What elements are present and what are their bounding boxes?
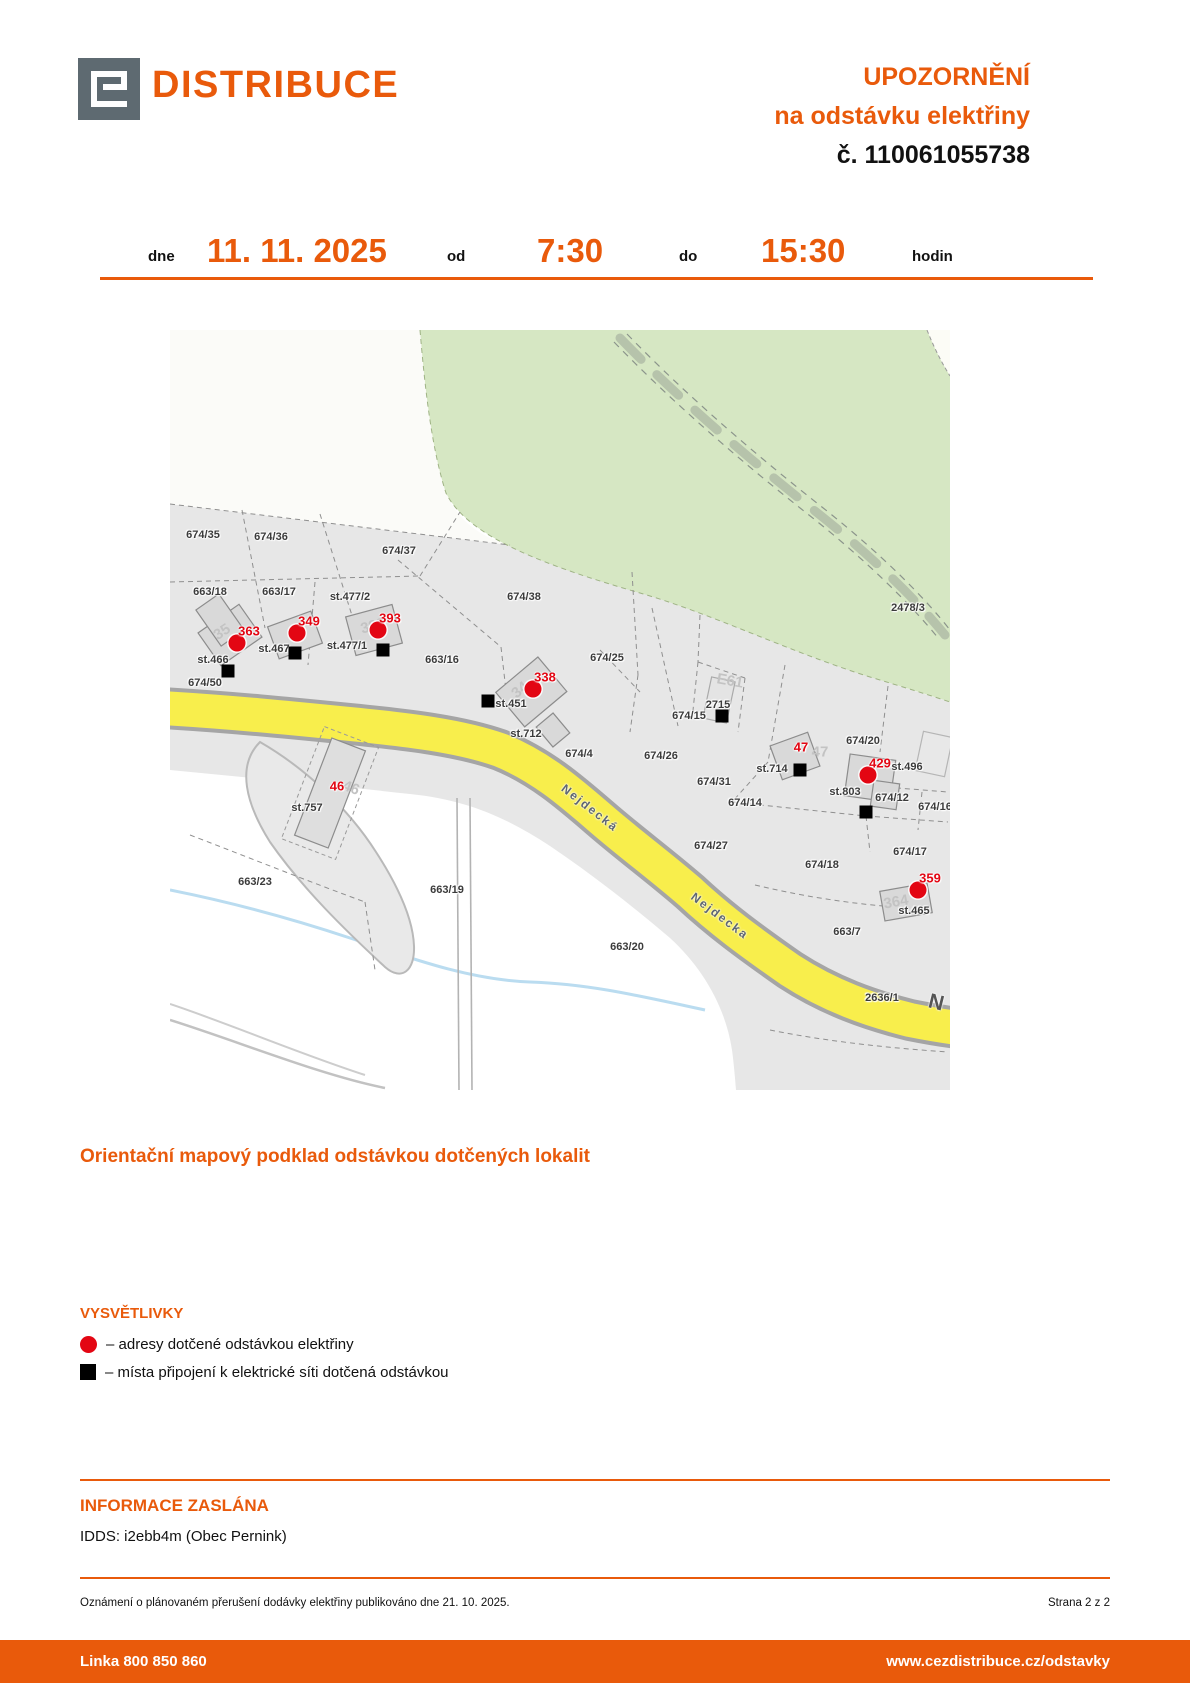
info-sent-detail: IDDS: i2ebb4m (Obec Pernink)	[80, 1528, 287, 1545]
address-number-label: 47	[794, 740, 808, 755]
outage-map: 3539334E614746364674/35674/36674/37663/1…	[170, 330, 950, 1090]
map-parcel-label: 663/19	[430, 884, 464, 896]
publication-note: Oznámení o plánovaném přerušení dodávky …	[80, 1597, 510, 1609]
map-parcel-label: st.712	[510, 728, 541, 740]
map-parcel-label: st.465	[898, 905, 929, 917]
map-overlay: 3539334E614746364674/35674/36674/37663/1…	[170, 330, 950, 1090]
connection-point-icon	[289, 647, 302, 660]
map-parcel-label: 663/16	[425, 654, 459, 666]
page-number: Strana 2 z 2	[1048, 1597, 1110, 1609]
map-caption: Orientační mapový podklad odstávkou dotč…	[80, 1146, 590, 1168]
hotline-number: Linka 800 850 860	[80, 1653, 207, 1670]
connection-point-icon	[482, 695, 495, 708]
map-street-label: N	[926, 990, 947, 1017]
map-parcel-label: 674/20	[846, 735, 880, 747]
hours-suffix-label: hodin	[912, 248, 953, 265]
to-prefix-label: do	[679, 248, 697, 265]
outage-website: www.cezdistribuce.cz/odstavky	[886, 1653, 1110, 1670]
connection-point-icon	[794, 764, 807, 777]
map-parcel-label: st.757	[291, 802, 322, 814]
map-parcel-label: 674/27	[694, 840, 728, 852]
notice-number: č. 110061055738	[774, 136, 1030, 175]
notice-header: UPOZORNĚNÍ na odstávku elektřiny č. 1100…	[774, 58, 1030, 175]
map-parcel-label: 674/12	[875, 792, 909, 804]
map-parcel-label: st.803	[829, 786, 860, 798]
map-parcel-label: 2478/3	[891, 602, 925, 614]
map-parcel-label: st.496	[891, 761, 922, 773]
map-street-label: Nejdecka	[688, 890, 751, 943]
notice-title-line1: UPOZORNĚNÍ	[774, 58, 1030, 97]
connection-point-icon	[222, 665, 235, 678]
map-parcel-label: 674/4	[565, 748, 593, 760]
map-parcel-label: st.467	[258, 643, 289, 655]
map-parcel-label: 674/18	[805, 859, 839, 871]
map-parcel-label: st.714	[756, 763, 787, 775]
outage-start-time: 7:30	[537, 232, 603, 270]
map-parcel-label: 674/15	[672, 710, 706, 722]
address-number-label: 349	[298, 614, 320, 629]
section-divider-bottom	[80, 1577, 1110, 1579]
connection-point-icon	[860, 806, 873, 819]
map-parcel-label: 663/18	[193, 586, 227, 598]
legend-item-label: – adresy dotčené odstávkou elektřiny	[106, 1336, 354, 1353]
map-parcel-label: 674/17	[893, 846, 927, 858]
map-parcel-label: 663/17	[262, 586, 296, 598]
map-parcel-label: 674/14	[728, 797, 762, 809]
outage-end-time: 15:30	[761, 232, 845, 270]
map-parcel-label: st.477/1	[327, 640, 367, 652]
address-legend-icon	[80, 1336, 97, 1353]
connection-legend-icon	[80, 1364, 96, 1380]
map-parcel-label: 674/16	[918, 801, 950, 813]
map-parcel-label: 674/50	[188, 677, 222, 689]
cez-logo-icon	[78, 58, 140, 120]
legend-title: VYSVĚTLIVKY	[80, 1305, 183, 1322]
map-parcel-label: st.477/2	[330, 591, 370, 603]
date-prefix-label: dne	[148, 248, 175, 265]
map-parcel-label: 674/25	[590, 652, 624, 664]
map-parcel-label: 663/20	[610, 941, 644, 953]
schedule-divider	[100, 277, 1093, 280]
address-number-label: 363	[238, 624, 260, 639]
brand-name: DISTRIBUCE	[152, 64, 399, 107]
footer-bar: Linka 800 850 860 www.cezdistribuce.cz/o…	[0, 1640, 1190, 1683]
address-number-label: 338	[534, 670, 556, 685]
outage-notice-page: DISTRIBUCE UPOZORNĚNÍ na odstávku elektř…	[0, 0, 1190, 1683]
notice-title-line2: na odstávku elektřiny	[774, 97, 1030, 136]
legend-item-connections: – místa připojení k elektrické síti dotč…	[80, 1362, 449, 1382]
outage-date: 11. 11. 2025	[207, 232, 387, 270]
address-number-label: 393	[379, 611, 401, 626]
legend-item-label: – místa připojení k elektrické síti dotč…	[105, 1364, 449, 1381]
map-parcel-label: st.451	[495, 698, 526, 710]
address-number-label: 429	[869, 756, 891, 771]
map-parcel-label: 674/37	[382, 545, 416, 557]
info-sent-title: INFORMACE ZASLÁNA	[80, 1496, 269, 1516]
from-prefix-label: od	[447, 248, 465, 265]
connection-point-icon	[377, 644, 390, 657]
map-parcel-label: 674/35	[186, 529, 220, 541]
map-parcel-label: 663/23	[238, 876, 272, 888]
map-ghost-label: E61	[715, 670, 744, 691]
address-number-label: 359	[919, 871, 941, 886]
map-parcel-label: 2636/1	[865, 992, 899, 1004]
address-number-label: 46	[330, 779, 344, 794]
map-parcel-label: 674/38	[507, 591, 541, 603]
map-ghost-label: 47	[812, 744, 829, 761]
legend-item-addresses: – adresy dotčené odstávkou elektřiny	[80, 1334, 354, 1354]
section-divider-top	[80, 1479, 1110, 1481]
connection-point-icon	[716, 710, 729, 723]
map-parcel-label: 674/26	[644, 750, 678, 762]
map-street-label: Nejdecká	[559, 781, 622, 834]
map-parcel-label: 663/7	[833, 926, 861, 938]
map-parcel-label: 674/31	[697, 776, 731, 788]
map-parcel-label: 674/36	[254, 531, 288, 543]
